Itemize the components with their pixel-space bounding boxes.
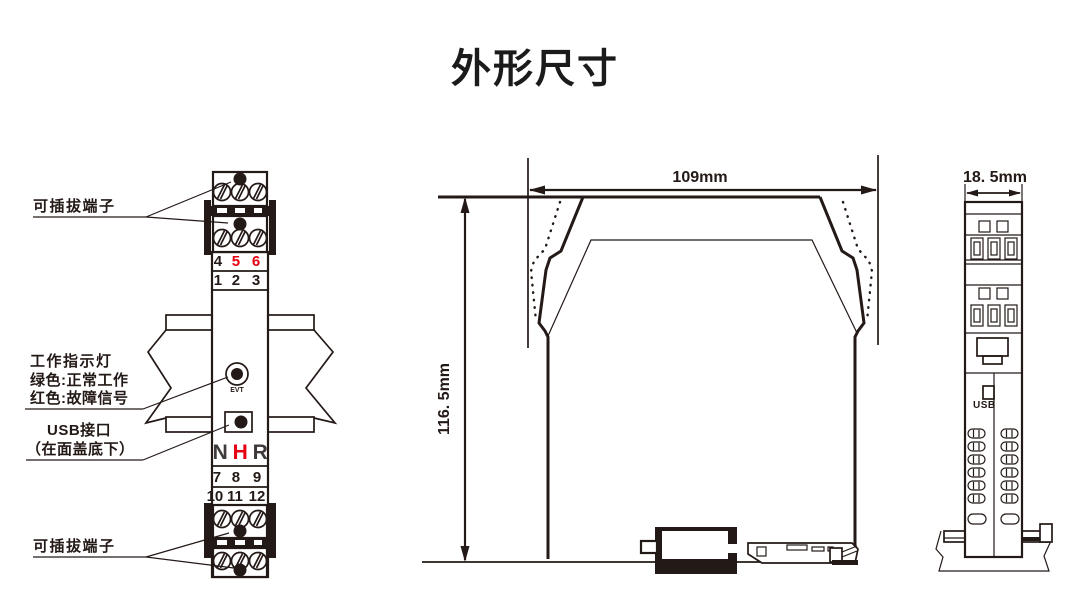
inner-cover-line	[548, 240, 857, 336]
usb-label: USB	[973, 400, 996, 411]
end-view: USB 18. 5mm	[936, 169, 1052, 571]
terminal-dotted-left	[531, 202, 560, 321]
usb-port-icon	[225, 412, 252, 432]
top-terminal-block	[204, 172, 276, 255]
label-usb-line1: USB接口	[47, 421, 111, 439]
front-view: 4 5 6 1 2 3 EVT N H	[25, 172, 335, 577]
arrow-right-icon	[1009, 190, 1021, 197]
label-pluggable-terminal-top: 可插拔端子	[33, 197, 116, 215]
terminal-row-789: 7 8 9	[213, 469, 261, 486]
label-indicator-line3: 红色:故障信号	[30, 389, 129, 407]
label-usb-line2: （在面盖底下）	[26, 440, 135, 458]
brand-logo: N H R	[213, 441, 268, 464]
width-dimension: 109mm	[528, 155, 878, 348]
terminal-row-456: 4 5 6	[214, 253, 260, 270]
terminal-dotted-right	[843, 202, 872, 321]
arrow-left-icon	[529, 186, 545, 195]
terminal-dot-icon	[234, 564, 247, 577]
terminal-row-123: 1 2 3	[214, 272, 260, 289]
arrow-left-icon	[966, 190, 978, 197]
led-indicator-icon	[226, 363, 248, 385]
led-label: EVT	[230, 387, 244, 394]
terminal-dot-icon	[234, 218, 247, 231]
terminal-dot-icon	[234, 525, 247, 538]
arrow-up-icon	[461, 197, 470, 213]
arrow-down-icon	[461, 546, 470, 562]
dimension-diagram: 4 5 6 1 2 3 EVT N H	[0, 0, 1080, 613]
height-dimension: 116. 5mm	[436, 197, 470, 562]
height-dimension-label: 116. 5mm	[436, 363, 453, 435]
label-indicator-line1: 工作指示灯	[30, 352, 113, 370]
rail-latch	[748, 543, 858, 565]
din-rail-cross-section	[641, 527, 738, 574]
terminal-row-101112: 10 11 12	[207, 488, 266, 505]
module-left-profile	[539, 197, 583, 559]
width-dimension-label: 109mm	[672, 169, 727, 186]
arrow-right-icon	[861, 186, 877, 195]
depth-dimension: 18. 5mm	[963, 169, 1027, 201]
label-pluggable-terminal-bottom: 可插拔端子	[33, 537, 116, 555]
module-right-profile	[820, 197, 864, 548]
depth-dimension-label: 18. 5mm	[963, 169, 1027, 186]
side-view: 116. 5mm 109mm	[422, 155, 878, 574]
outline-dimension-drawing: 外形尺寸	[0, 0, 1080, 613]
terminal-dot-icon	[234, 173, 247, 186]
label-indicator-line2: 绿色:正常工作	[30, 371, 129, 389]
